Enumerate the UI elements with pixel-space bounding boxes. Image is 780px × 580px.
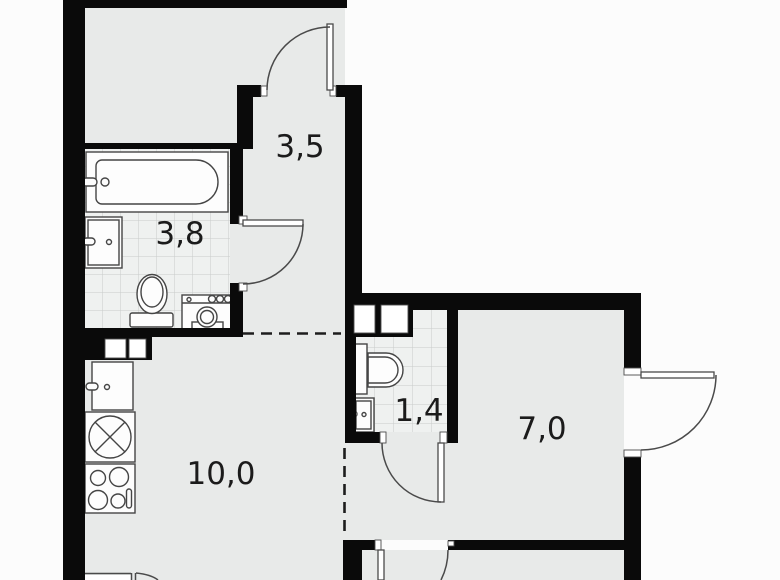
bath-sink-icon xyxy=(83,217,122,268)
room-label-hallway: 3,5 xyxy=(275,129,324,165)
wall-outer-right-lower xyxy=(624,457,641,580)
room-label-bathroom: 3,8 xyxy=(155,216,204,252)
door-swing-icon xyxy=(641,372,716,450)
room-label-kitchen: 10,0 xyxy=(186,456,255,492)
floor-plan: 3,5 3,8 1,4 7,0 10,0 xyxy=(0,0,780,580)
bathtub-icon xyxy=(82,152,228,212)
kitchen-sink-icon xyxy=(86,362,133,410)
wall-toproom-bottom xyxy=(83,143,238,149)
room-label-room: 7,0 xyxy=(517,411,566,447)
floor-plan-drawing: 3,5 3,8 1,4 7,0 10,0 xyxy=(0,0,780,580)
wall-outer-right-upper xyxy=(624,293,641,375)
vent-shaft-icon xyxy=(381,305,408,333)
wall-bottom-b xyxy=(448,540,624,550)
wall-bottom-corner xyxy=(343,540,362,580)
room-label-wc: 1,4 xyxy=(394,393,443,429)
kitchen-fixtures xyxy=(85,362,135,513)
vent-shaft-icon xyxy=(354,305,375,333)
wall-bathroom-right-upper xyxy=(230,149,243,224)
washing-machine-icon xyxy=(182,295,232,332)
floor-bottom-rooms xyxy=(362,550,624,580)
wall-hallway-top-a xyxy=(237,85,261,97)
stove-icon xyxy=(85,464,135,513)
vent-shaft-icon xyxy=(129,339,146,358)
wall-outer-left xyxy=(63,0,85,580)
vent-shaft-icon xyxy=(105,339,126,358)
hob-icon xyxy=(85,412,135,462)
wall-corridor-right xyxy=(345,85,362,313)
wall-wc-left xyxy=(345,337,356,443)
wall-outer-top xyxy=(63,0,347,8)
wall-wc-right xyxy=(447,310,458,443)
wall-wc-bottom xyxy=(345,432,380,443)
wall-bathroom-bottom xyxy=(83,328,243,337)
